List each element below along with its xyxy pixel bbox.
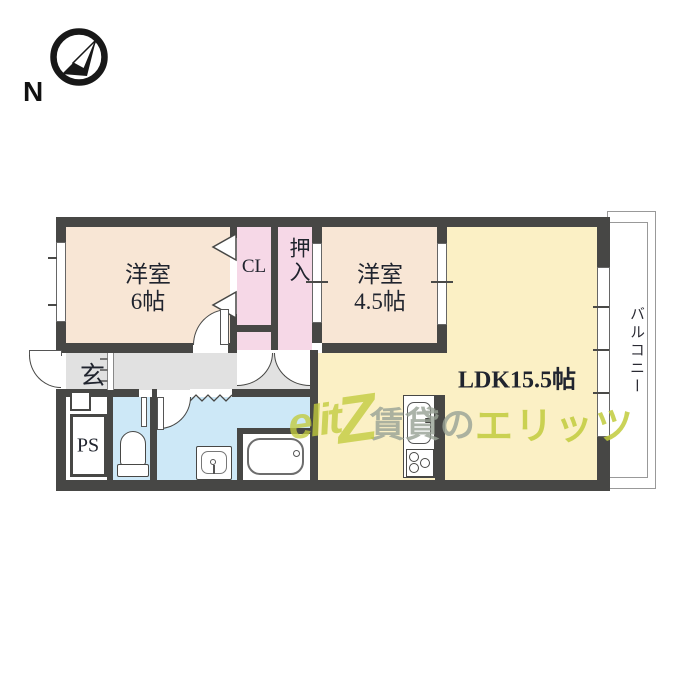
wall-segment [322, 343, 447, 353]
wall-segment [435, 395, 445, 480]
kitchen-faucet [425, 418, 431, 423]
compass-north-label: N [23, 76, 43, 108]
wall-segment [228, 343, 237, 353]
pipe-space-label: PS [77, 435, 99, 458]
room-size: 4.5帖 [354, 288, 406, 315]
bathtub-faucet [293, 450, 300, 457]
window-tick [593, 349, 609, 351]
west-room-6-label: 洋室 6帖 [125, 261, 171, 315]
washroom-door-leaf [157, 397, 164, 430]
wall-segment [437, 325, 447, 343]
genkan-step [107, 353, 114, 390]
window [56, 242, 66, 322]
window-tick [48, 257, 57, 259]
oshiire-label: 押入 [284, 237, 314, 285]
wall-segment [237, 325, 271, 332]
ldk-floor [447, 227, 597, 480]
wall-segment [56, 480, 610, 491]
washbasin-drain [213, 465, 215, 474]
stove-icon [406, 449, 434, 477]
wall-segment [56, 343, 193, 353]
toilet-icon [120, 431, 146, 466]
ldk-label: LDK15.5帖 [458, 360, 576, 395]
window-tick [593, 306, 609, 308]
stove-burner [409, 452, 419, 462]
window-tick [48, 304, 57, 306]
wall-segment [152, 389, 157, 397]
floor-plan-page: N バルコニー [0, 0, 700, 700]
door-leaf [220, 309, 229, 345]
sliding-door [437, 243, 447, 325]
wall-segment [232, 389, 310, 397]
compass-icon [48, 26, 110, 88]
room-name: 洋室 [125, 261, 171, 288]
sliding-window [597, 267, 610, 437]
room-size: 6帖 [125, 288, 171, 315]
closet-label: CL [242, 256, 266, 278]
kitchen-sink-icon [407, 402, 431, 444]
wall-segment [437, 227, 447, 243]
wall-segment [56, 389, 66, 491]
genkan-label: 玄 [80, 356, 105, 392]
stove-burner [409, 463, 419, 473]
wall-segment [312, 323, 322, 343]
balcony-label: バルコニー [626, 306, 647, 396]
toilet-tank [117, 464, 149, 477]
closet-lower-floor [237, 332, 271, 350]
wall-segment [597, 437, 610, 491]
wall-segment [107, 389, 113, 480]
wall-segment [56, 217, 610, 227]
meter-box [70, 391, 91, 411]
west-room-45-label: 洋室 4.5帖 [354, 261, 406, 315]
stove-burner [420, 458, 430, 468]
wall-segment [150, 397, 157, 480]
sliding-door-tick [431, 281, 453, 283]
accordion-door [190, 389, 232, 397]
wall-segment [113, 389, 139, 397]
wall-segment [56, 217, 66, 242]
toilet-door-leaf [141, 397, 147, 427]
room-name: 洋室 [354, 261, 406, 288]
window-tick [593, 392, 609, 394]
wall-segment [310, 350, 318, 480]
entrance-door-arc [29, 355, 61, 388]
wall-segment [597, 217, 610, 267]
wall-segment [271, 227, 278, 350]
